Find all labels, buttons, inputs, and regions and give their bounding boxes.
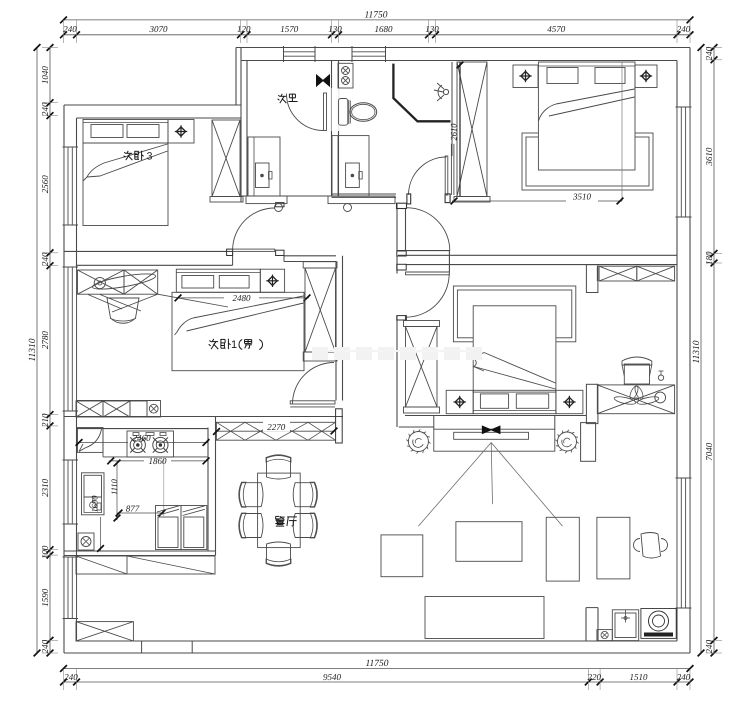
svg-text:240: 240 (677, 24, 691, 34)
svg-text:240: 240 (40, 252, 50, 266)
svg-text:9540: 9540 (323, 672, 342, 682)
svg-text:120: 120 (237, 24, 251, 34)
svg-text:1: 1 (231, 339, 237, 351)
svg-text:180: 180 (704, 251, 714, 265)
svg-text:240: 240 (40, 102, 50, 116)
svg-text:220: 220 (587, 672, 601, 682)
svg-text:2560: 2560 (40, 175, 50, 194)
svg-text:4570: 4570 (547, 24, 566, 34)
svg-text:2480: 2480 (233, 293, 252, 303)
svg-text:100: 100 (40, 545, 50, 559)
svg-text:11310: 11310 (692, 340, 702, 363)
svg-text:3070: 3070 (149, 24, 169, 34)
svg-text:1860: 1860 (149, 456, 168, 466)
svg-text:3510: 3510 (572, 192, 592, 202)
svg-text:11750: 11750 (364, 11, 387, 21)
svg-text:240: 240 (677, 672, 691, 682)
svg-text:240: 240 (40, 639, 50, 653)
svg-text:877: 877 (126, 503, 140, 513)
svg-text:130: 130 (328, 24, 342, 34)
svg-text:240: 240 (64, 672, 78, 682)
svg-text:2310: 2310 (40, 478, 50, 497)
svg-text:240: 240 (704, 639, 714, 653)
svg-text:210: 210 (40, 413, 50, 427)
svg-text:11750: 11750 (365, 659, 388, 669)
svg-text:1590: 1590 (40, 588, 50, 607)
svg-text:3610: 3610 (704, 147, 714, 167)
svg-text:240: 240 (704, 46, 714, 60)
svg-text:2270: 2270 (267, 422, 286, 432)
svg-text:2610: 2610 (449, 123, 459, 141)
svg-text:1570: 1570 (280, 24, 299, 34)
svg-text:2780: 2780 (40, 331, 50, 350)
svg-text:240: 240 (63, 24, 77, 34)
svg-text:1040: 1040 (40, 66, 50, 85)
svg-text:130: 130 (425, 24, 439, 34)
svg-text:7040: 7040 (704, 442, 714, 461)
svg-text:1110: 1110 (109, 478, 119, 494)
svg-text:3: 3 (147, 151, 153, 163)
svg-text:2460: 2460 (133, 433, 152, 443)
svg-text:1510: 1510 (630, 672, 649, 682)
svg-text:1690: 1690 (89, 495, 99, 513)
svg-text:1680: 1680 (375, 24, 394, 34)
svg-text:11310: 11310 (28, 338, 38, 361)
